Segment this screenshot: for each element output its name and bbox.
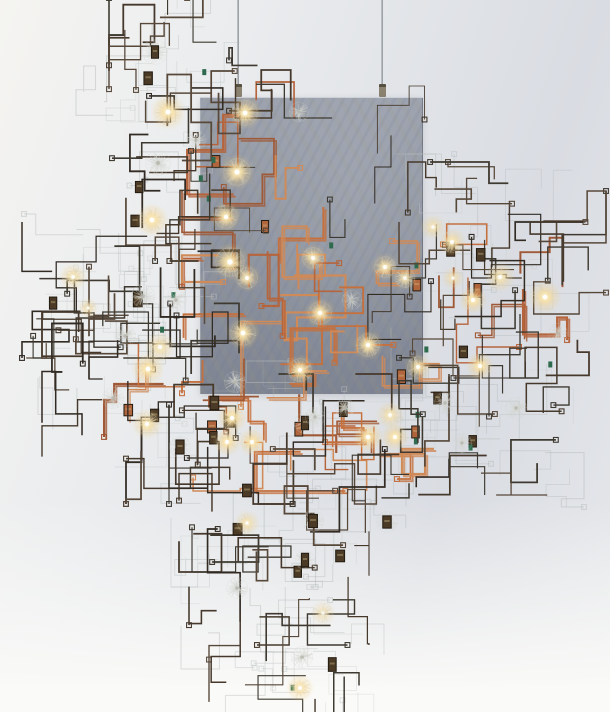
wire-and-orb-network-canvas bbox=[0, 0, 610, 712]
studio-backdrop bbox=[0, 0, 610, 712]
